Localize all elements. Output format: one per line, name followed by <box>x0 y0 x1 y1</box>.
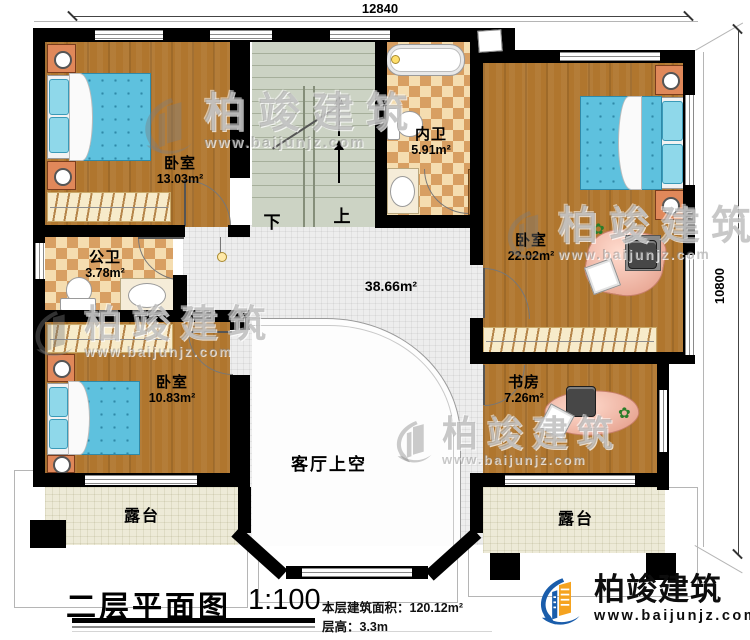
window <box>685 255 695 355</box>
watermark-url: www.baijunjz.com <box>558 246 750 262</box>
room-area: 10.83m² <box>127 391 217 405</box>
wall-bedroom2-bottom <box>470 352 695 364</box>
wardrobe <box>47 192 171 222</box>
door-leaf <box>138 237 184 239</box>
terrace-pillar <box>490 553 520 580</box>
pillow <box>49 79 69 115</box>
room-label-public-bath: 公卫 3.78m² <box>60 249 150 281</box>
floor-plan-canvas: 下 上 卧室 13.03m² 公卫 3.78m² 内卫 5.91m² ✿ <box>0 0 750 640</box>
pillow <box>662 144 683 184</box>
brand-name: 柏竣建筑 <box>594 574 750 605</box>
bed-blanket <box>68 381 90 455</box>
eave-line-right <box>703 52 704 547</box>
nightstand <box>655 65 685 95</box>
sink-basin <box>390 176 415 207</box>
bed-blanket <box>618 96 642 190</box>
hall-area-label: 38.66m² <box>346 278 436 294</box>
brand-logo-icon <box>532 574 586 634</box>
door-leaf <box>184 180 186 226</box>
watermark-logo-icon <box>136 92 198 166</box>
window <box>302 568 412 577</box>
stair-down-label: 下 <box>258 208 286 233</box>
pendant-cord <box>220 237 221 253</box>
room-area: 7.26m² <box>479 391 569 405</box>
window <box>210 30 272 40</box>
watermark-url: www.baijunjz.com <box>84 344 276 359</box>
terrace-pillar <box>30 520 66 548</box>
window <box>85 475 197 485</box>
room-area: 3.78m² <box>60 266 150 280</box>
watermark: 柏竣建筑 www.baijunjz.com <box>500 206 750 268</box>
floor-area-text: 本层建筑面积：120.12m² <box>322 597 463 616</box>
watermark-logo-icon <box>28 306 78 366</box>
watermark-url: www.baijunjz.com <box>442 452 622 467</box>
window <box>659 390 667 452</box>
watermark: 柏竣建筑 www.baijunjz.com <box>136 92 420 166</box>
watermark-text: 柏竣建筑 www.baijunjz.com <box>204 92 420 151</box>
pillow <box>662 101 683 141</box>
watermark: 柏竣建筑 www.baijunjz.com <box>390 416 622 472</box>
terrace-left-label: 露台 <box>97 502 187 526</box>
pillow <box>49 387 68 417</box>
pillow <box>49 419 68 449</box>
wall-bedroom1-bottom <box>33 225 185 237</box>
watermark-logo-icon <box>500 206 552 268</box>
pillow <box>49 117 69 153</box>
room-area: 13.03m² <box>135 172 225 186</box>
room-label-bedroom-bottom-left: 卧室 10.83m² <box>127 374 217 406</box>
dimension-line-top <box>72 16 688 17</box>
window <box>685 95 695 185</box>
nightstand <box>47 161 76 190</box>
bed-blanket <box>69 73 93 161</box>
window <box>505 475 635 485</box>
room-name: 公卫 <box>60 249 150 266</box>
watermark-url: www.baijunjz.com <box>204 134 420 151</box>
stair-up-label: 上 <box>328 202 356 227</box>
eave-diagonal-bottom-right <box>695 545 743 573</box>
eave-line-top <box>34 21 698 22</box>
watermark-name: 柏竣建筑 <box>558 206 750 246</box>
wall-bedroom3-right <box>230 375 250 473</box>
room-name: 书房 <box>479 374 569 391</box>
floor-height-text: 层高：3.3m <box>322 616 388 635</box>
brand-website: www.baijunjz.com <box>594 608 750 624</box>
window <box>95 30 163 40</box>
room-label-study: 书房 7.26m² <box>479 374 569 406</box>
terrace-right-label: 露台 <box>531 505 621 529</box>
nightstand <box>47 44 76 73</box>
wall-stub <box>228 225 250 237</box>
living-void-label: 客厅上空 <box>269 450 389 475</box>
title-underline-faint <box>72 631 492 632</box>
watermark-logo-icon <box>390 416 436 472</box>
bathtub-faucet <box>391 55 400 64</box>
watermark-name: 柏竣建筑 <box>204 92 420 134</box>
watermark-name: 柏竣建筑 <box>442 416 622 452</box>
dimension-right-value: 10800 <box>712 268 730 304</box>
watermark-name: 柏竣建筑 <box>84 306 276 344</box>
title-underline-thin <box>72 626 315 628</box>
nightstand <box>47 455 75 473</box>
door-leaf <box>483 268 485 318</box>
wall-stub <box>470 487 483 533</box>
watermark-text: 柏竣建筑 www.baijunjz.com <box>84 306 276 359</box>
wall-ensuite-bottom <box>375 215 483 228</box>
wardrobe <box>483 327 657 355</box>
title-underline-thick <box>72 618 315 623</box>
flue-shaft <box>477 29 502 53</box>
dimension-top-value: 12840 <box>340 1 420 16</box>
brand-logo: 柏竣建筑 www.baijunjz.com <box>532 574 750 634</box>
window <box>330 30 390 40</box>
drawing-scale: 1:100 <box>248 584 321 617</box>
watermark-text: 柏竣建筑 www.baijunjz.com <box>558 206 750 262</box>
window <box>35 243 45 279</box>
window <box>560 52 660 61</box>
dimension-line-right <box>738 30 739 555</box>
watermark-text: 柏竣建筑 www.baijunjz.com <box>442 416 622 467</box>
watermark: 柏竣建筑 www.baijunjz.com <box>28 306 276 366</box>
brand-text: 柏竣建筑 www.baijunjz.com <box>594 574 750 624</box>
pendant-light <box>217 252 227 262</box>
room-name: 卧室 <box>127 374 217 391</box>
